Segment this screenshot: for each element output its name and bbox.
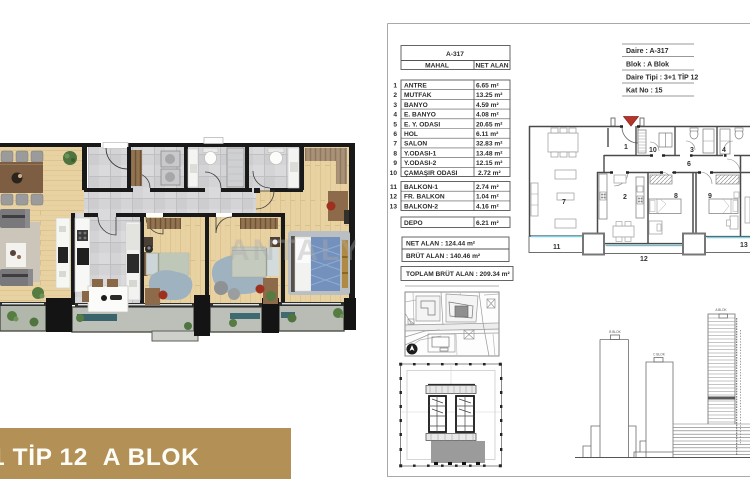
svg-text:A BLOK: A BLOK [715, 308, 727, 312]
svg-text:2.72 m²: 2.72 m² [478, 170, 502, 177]
svg-text:9: 9 [708, 193, 712, 200]
svg-text:FR. BALKON: FR. BALKON [404, 194, 445, 201]
svg-text:4.08 m²: 4.08 m² [476, 112, 500, 119]
svg-text:9: 9 [393, 160, 397, 167]
svg-text:E. BANYO: E. BANYO [404, 112, 436, 119]
svg-text:11: 11 [390, 184, 397, 191]
svg-text:13.48 m²: 13.48 m² [476, 150, 503, 157]
svg-text:SALON: SALON [404, 141, 427, 148]
svg-text:12: 12 [390, 194, 398, 201]
svg-text:7: 7 [393, 141, 397, 148]
svg-text:6: 6 [687, 161, 691, 168]
svg-text:1.04 m²: 1.04 m² [476, 194, 500, 201]
svg-text:2.74 m²: 2.74 m² [476, 184, 500, 191]
svg-text:B BLOK: B BLOK [609, 330, 621, 334]
svg-text:6.65 m²: 6.65 m² [476, 83, 500, 90]
svg-text:A-317: A-317 [446, 51, 464, 58]
svg-text:Y.ODASI-1: Y.ODASI-1 [404, 150, 437, 157]
svg-text:10: 10 [390, 170, 398, 177]
svg-text:Y.ODASI-2: Y.ODASI-2 [404, 160, 437, 167]
svg-text:TOPLAM BRÜT ALAN : 209.34 m²: TOPLAM BRÜT ALAN : 209.34 m² [406, 269, 510, 278]
svg-text:BANYO: BANYO [404, 102, 428, 109]
svg-text:13.25 m²: 13.25 m² [476, 92, 503, 99]
svg-text:1: 1 [624, 144, 628, 151]
svg-text:6.11 m²: 6.11 m² [476, 131, 499, 138]
svg-text:32.83 m²: 32.83 m² [476, 141, 503, 148]
svg-text:DEPO: DEPO [404, 220, 423, 227]
svg-text:C BLOK: C BLOK [653, 353, 666, 357]
svg-text:13: 13 [390, 203, 398, 210]
svg-text:ÇAMAŞIR ODASI: ÇAMAŞIR ODASI [404, 170, 458, 177]
svg-text:4: 4 [722, 147, 726, 154]
svg-text:12: 12 [640, 256, 648, 263]
svg-text:2: 2 [393, 92, 397, 99]
svg-text:MAHAL: MAHAL [425, 63, 449, 70]
svg-text:Kat No : 15: Kat No : 15 [626, 88, 663, 95]
svg-text:3: 3 [690, 147, 694, 154]
svg-text:7: 7 [562, 199, 566, 206]
svg-text:Blok : A Blok: Blok : A Blok [626, 62, 669, 69]
svg-text:1: 1 [393, 83, 397, 90]
svg-text:ANTALYA: ANTALYA [228, 234, 385, 267]
svg-text:HOL: HOL [404, 131, 418, 138]
svg-text:12.15 m²: 12.15 m² [476, 160, 503, 167]
svg-text:11: 11 [553, 244, 561, 251]
svg-text:1 TİP 12 A BLOK: 1 TİP 12 A BLOK [0, 444, 199, 471]
svg-text:ANTRE: ANTRE [404, 83, 427, 90]
svg-text:2: 2 [623, 194, 627, 201]
svg-text:E. Y. ODASI: E. Y. ODASI [404, 121, 440, 128]
svg-text:MUTFAK: MUTFAK [404, 92, 432, 99]
svg-text:4.59 m²: 4.59 m² [476, 102, 500, 109]
svg-text:20.65 m²: 20.65 m² [476, 121, 503, 128]
svg-text:6.21 m²: 6.21 m² [476, 220, 500, 227]
svg-text:BRÜT ALAN : 140.46 m²: BRÜT ALAN : 140.46 m² [406, 251, 481, 260]
svg-text:13: 13 [740, 242, 748, 249]
svg-text:8: 8 [393, 150, 397, 157]
svg-text:5: 5 [393, 121, 397, 128]
svg-text:BALKON-2: BALKON-2 [404, 203, 438, 210]
svg-text:4.16 m²: 4.16 m² [476, 203, 500, 210]
svg-text:Daire : A-317: Daire : A-317 [626, 48, 669, 55]
svg-text:8: 8 [674, 193, 678, 200]
svg-text:10: 10 [649, 147, 657, 154]
svg-text:Daire Tipi : 3+1 TİP 12: Daire Tipi : 3+1 TİP 12 [626, 74, 698, 82]
svg-text:4: 4 [393, 112, 397, 119]
svg-text:NET ALAN: NET ALAN [475, 63, 508, 70]
svg-text:NET ALAN : 124.44 m²: NET ALAN : 124.44 m² [406, 241, 476, 248]
svg-text:3: 3 [393, 102, 397, 109]
svg-text:BALKON-1: BALKON-1 [404, 184, 438, 191]
svg-text:6: 6 [393, 131, 397, 138]
